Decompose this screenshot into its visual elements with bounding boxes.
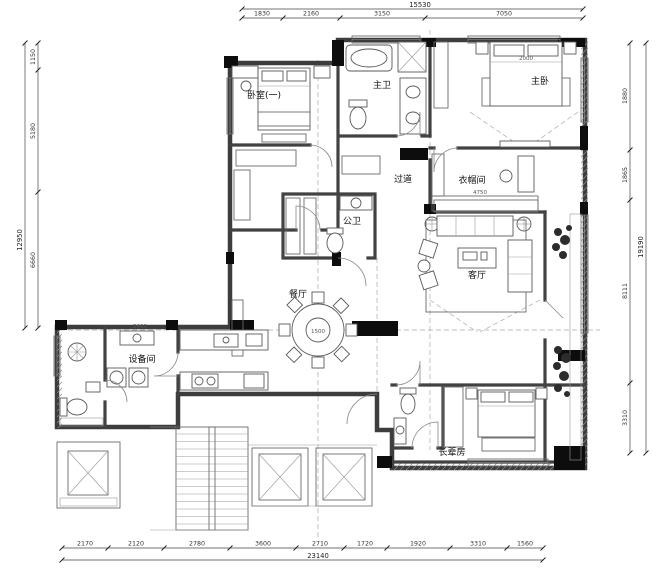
kitchen	[180, 330, 268, 390]
cloakroom: 衣帽间 4750	[432, 154, 538, 211]
living-label: 客厅	[468, 269, 486, 281]
dim-bottom-seg-1: 2170	[77, 541, 93, 548]
dim-bottom-seg-2: 2120	[128, 541, 144, 548]
sofa	[437, 216, 513, 236]
bedroom1-label: 卧室(一)	[247, 89, 281, 101]
corridor-storage	[342, 156, 380, 174]
planter-strip	[570, 214, 581, 460]
toilet-guest	[327, 228, 343, 253]
nightstand	[314, 66, 330, 78]
dimension-bottom: 2170 2120 2780 3600 2710 1720 1920 3310 …	[60, 541, 546, 563]
dimension-right: 1880 1865 8111 3310 19190	[622, 41, 649, 456]
master-bathroom: 主卫	[346, 42, 426, 134]
dim-left-total: 12950	[16, 229, 24, 251]
chaise-sofa	[508, 240, 532, 292]
armchair-2	[419, 271, 438, 290]
guest-bath-label: 公卫	[343, 216, 361, 227]
cloakroom-label: 衣帽间	[458, 174, 485, 186]
dim-bottom-total: 23140	[307, 552, 329, 560]
dim-right-seg-1: 1880	[622, 88, 629, 104]
balcony	[545, 214, 581, 460]
dim-bottom-seg-8: 3310	[470, 541, 486, 548]
desk	[232, 66, 258, 78]
elder-wardrobe	[443, 387, 463, 447]
floor-plan-page: 卧室(一) 主卫	[0, 0, 670, 584]
stool	[500, 170, 512, 182]
washer-2	[129, 368, 148, 387]
dimension-left: 12950 1150 5180 6660	[16, 41, 41, 331]
dim-bottom-seg-4: 3600	[255, 541, 271, 548]
living-room: 客厅	[418, 200, 538, 312]
floor-plan-canvas: 卧室(一) 主卫	[0, 0, 670, 584]
dim-bottom-seg-6: 1720	[357, 541, 373, 548]
equipment-room: 设备间 2400	[107, 324, 156, 387]
balcony-door-leaf	[545, 300, 563, 318]
stair-rail	[209, 427, 215, 530]
stairwell	[176, 427, 248, 530]
dim-top-seg-3: 3150	[374, 11, 390, 18]
elder-room-label: 长辈房	[438, 446, 465, 458]
dim-top-seg-2: 2160	[303, 11, 319, 18]
desk-chair	[241, 81, 251, 91]
elder-room: 长辈房	[394, 387, 547, 458]
dim-right-seg-2: 1865	[622, 167, 629, 183]
wardrobe-master	[434, 42, 448, 108]
guest-bathroom: 公卫	[286, 196, 372, 254]
dim-bottom-seg-5: 2710	[312, 541, 328, 548]
equipment-dim: 2400	[133, 324, 147, 330]
dim-left-seg-1: 1150	[30, 49, 37, 65]
elder-nightstand-2	[536, 388, 547, 399]
dining-label: 餐厅	[289, 288, 307, 300]
bed-elder	[478, 390, 535, 437]
master-bath-label: 主卫	[373, 79, 391, 91]
dim-right-total: 19190	[637, 236, 645, 258]
master-bed-dim: 2000	[519, 56, 533, 62]
dim-left-seg-3: 6660	[30, 252, 37, 268]
wardrobe-strip-1	[236, 150, 296, 166]
bathtub	[346, 45, 392, 71]
tv-wall-cabinet	[434, 200, 538, 212]
dining-table-dim: 1500	[311, 329, 325, 335]
wardrobe-strip-2	[234, 170, 250, 220]
washer-1	[107, 368, 126, 387]
armchair-1	[419, 239, 438, 258]
dim-top-seg-1: 1830	[254, 11, 270, 18]
ceiling-light-2	[517, 217, 531, 231]
cloakroom-dim: 4750	[473, 190, 487, 196]
stair-treads	[176, 434, 248, 524]
elevator-3	[57, 442, 120, 508]
corridor: 过道	[342, 156, 412, 185]
basin	[86, 382, 100, 392]
master-bedroom-label: 主卧	[531, 75, 549, 87]
toilet-west	[60, 398, 87, 416]
dining-table: 1500	[292, 304, 344, 356]
elevator-1	[252, 448, 308, 506]
side-table	[418, 260, 430, 272]
dresser	[518, 156, 534, 192]
nightstand-right	[564, 42, 576, 54]
plant-1	[552, 225, 572, 259]
water-heater	[120, 331, 154, 345]
bath-closet-2	[304, 198, 316, 254]
dim-bottom-seg-7: 1920	[410, 541, 426, 548]
double-vanity	[400, 78, 426, 134]
elder-nightstand-1	[466, 388, 477, 399]
shower	[398, 42, 426, 72]
equipment-label: 设备间	[128, 353, 155, 365]
dim-left-seg-2: 5180	[30, 123, 37, 139]
bedroom1: 卧室(一)	[232, 66, 330, 220]
elevator-2	[316, 448, 372, 506]
coffee-table	[458, 248, 496, 268]
dim-right-seg-4: 3310	[622, 410, 629, 426]
elder-rug	[482, 438, 535, 451]
kitchen-counter-top	[180, 330, 268, 350]
master-bedroom: 主卧 2000	[434, 42, 576, 147]
wardrobe-row	[432, 196, 538, 211]
elder-bath	[394, 388, 416, 444]
vanity-guest	[340, 196, 372, 210]
dim-bottom-seg-3: 2780	[189, 541, 205, 548]
shower-head	[68, 343, 86, 361]
west-bathroom	[60, 343, 103, 426]
tv-cabinet-master	[500, 141, 550, 147]
kitchen-counter-bottom	[180, 372, 268, 390]
dim-right-seg-3: 8111	[622, 283, 629, 299]
dim-bottom-seg-9: 1560	[517, 541, 533, 548]
dimension-top: 15530 1830 2160 3150 7050	[240, 1, 586, 21]
bed-bench	[262, 134, 306, 142]
bed-master	[490, 42, 562, 106]
dim-top-total: 15530	[409, 1, 431, 9]
dim-top-seg-4: 7050	[496, 11, 512, 18]
corridor-label: 过道	[394, 173, 412, 185]
nightstand-left	[476, 42, 488, 54]
toilet-master	[349, 100, 367, 129]
